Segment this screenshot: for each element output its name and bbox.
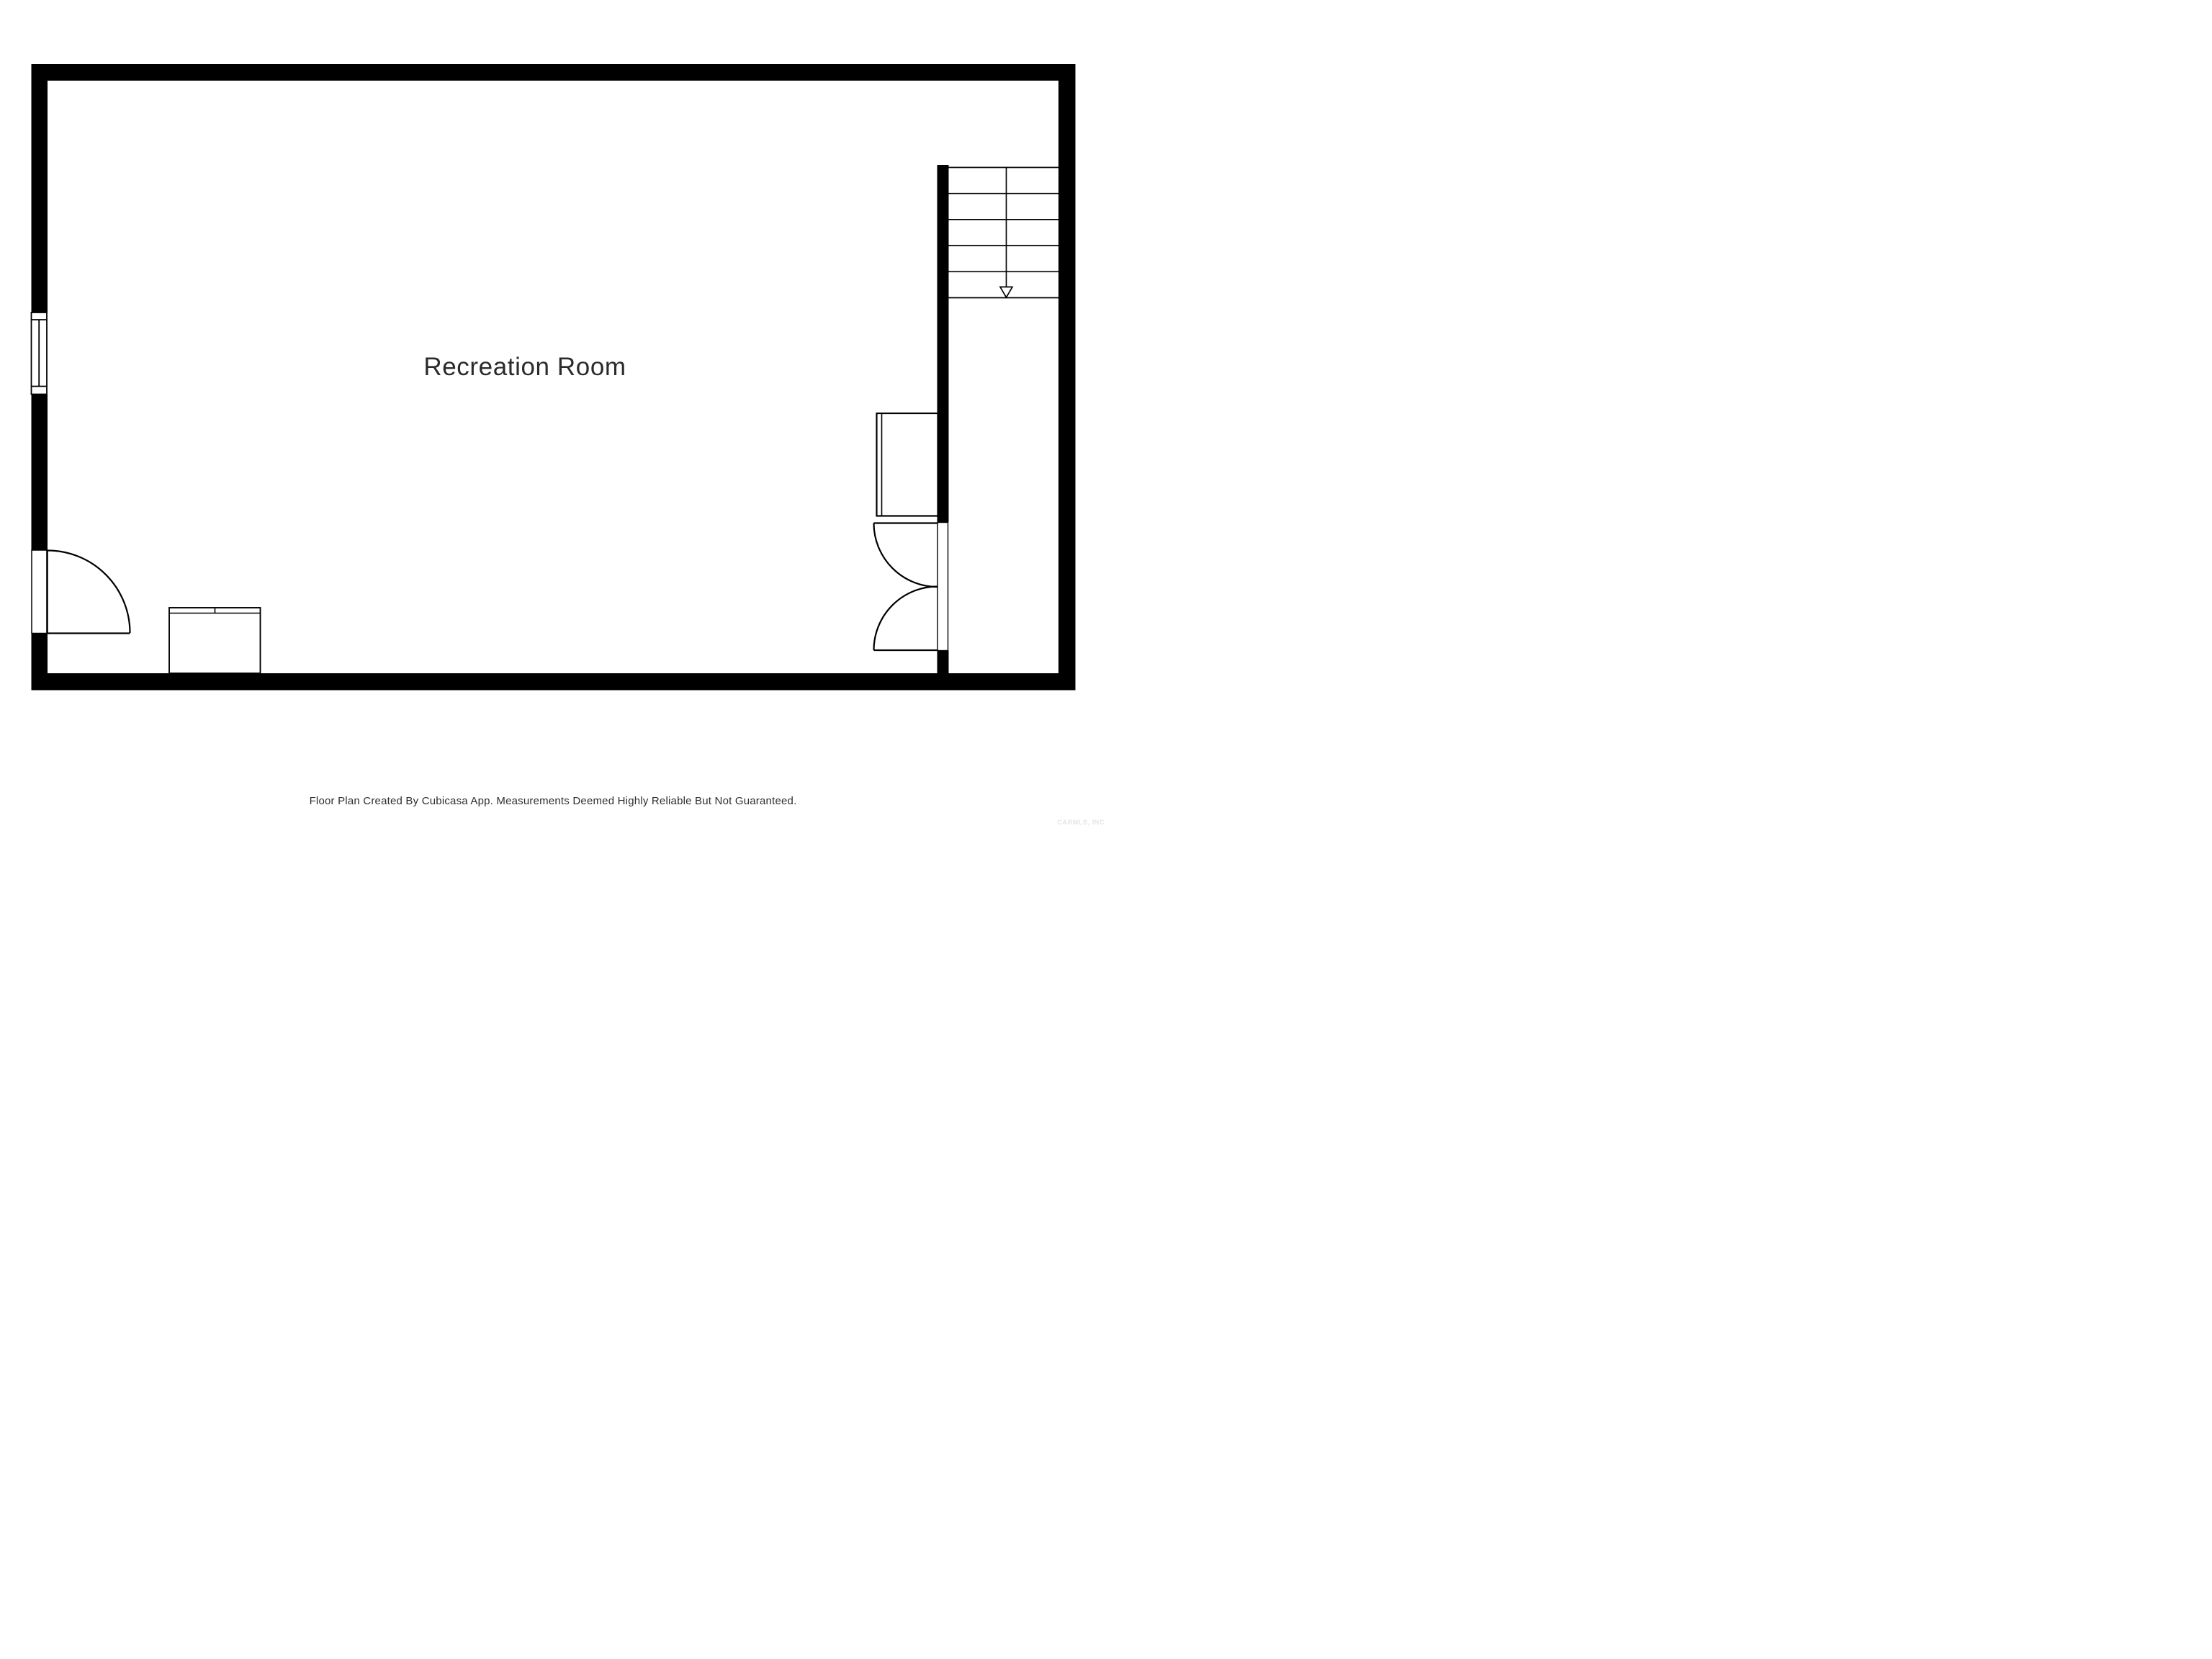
partition-wall-lower-segment — [938, 651, 949, 674]
double-door-upper-swing-arc — [874, 523, 938, 588]
footer-disclaimer: Floor Plan Created By Cubicasa App. Meas… — [0, 795, 1106, 807]
entry-door-swing-arc — [48, 551, 130, 634]
stairwell-double-doors — [874, 523, 948, 651]
wall-left-lower-segment — [32, 634, 48, 691]
cabinet-body — [877, 413, 938, 516]
floor-plan-drawing — [0, 0, 1106, 829]
console-body — [169, 608, 261, 673]
mls-watermark: CARMLS, INC — [1057, 819, 1105, 826]
wall-left-middle-segment — [32, 395, 48, 551]
wall-right — [1058, 64, 1076, 691]
stair-down-arrow-icon — [1000, 287, 1012, 298]
entry-door — [32, 550, 130, 634]
wall-left-upper-segment — [32, 64, 48, 313]
staircase — [949, 168, 1059, 298]
cabinet — [877, 413, 938, 516]
window — [32, 313, 48, 395]
double-door-lower-swing-arc — [874, 587, 938, 651]
wall-bottom — [32, 673, 1076, 691]
room-label: Recreation Room — [423, 353, 626, 382]
entry-door-jamb — [32, 550, 48, 634]
partition-wall-upper-segment — [938, 165, 949, 522]
wall-top — [32, 64, 1076, 81]
double-door-jamb — [938, 523, 948, 651]
floor-plan-page: Recreation Room Floor Plan Created By Cu… — [0, 0, 1106, 829]
console — [169, 608, 261, 673]
